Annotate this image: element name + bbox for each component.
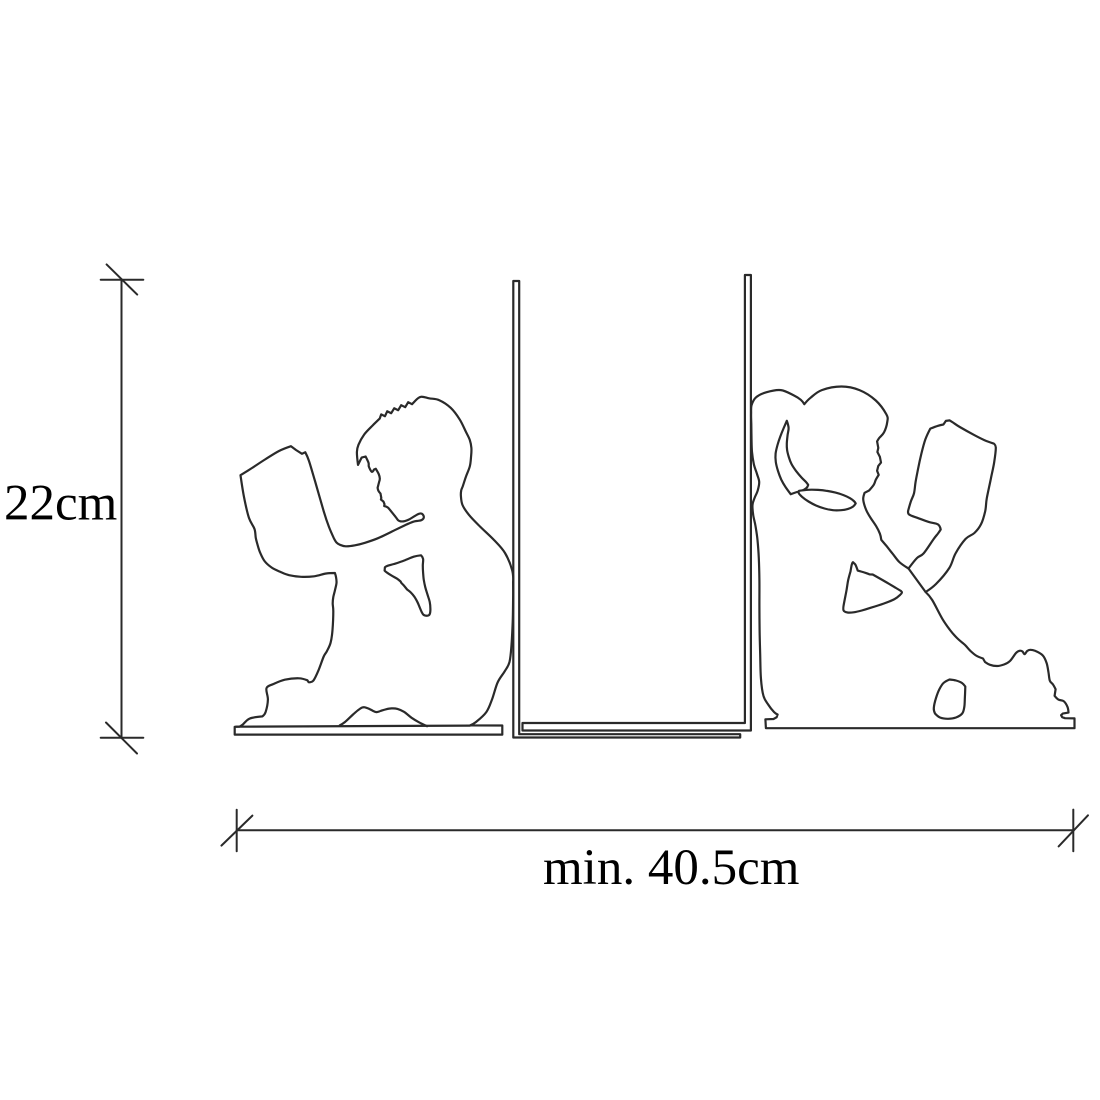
svg-text:min. 40.5cm: min. 40.5cm (543, 840, 799, 896)
svg-text:22cm: 22cm (4, 476, 117, 532)
